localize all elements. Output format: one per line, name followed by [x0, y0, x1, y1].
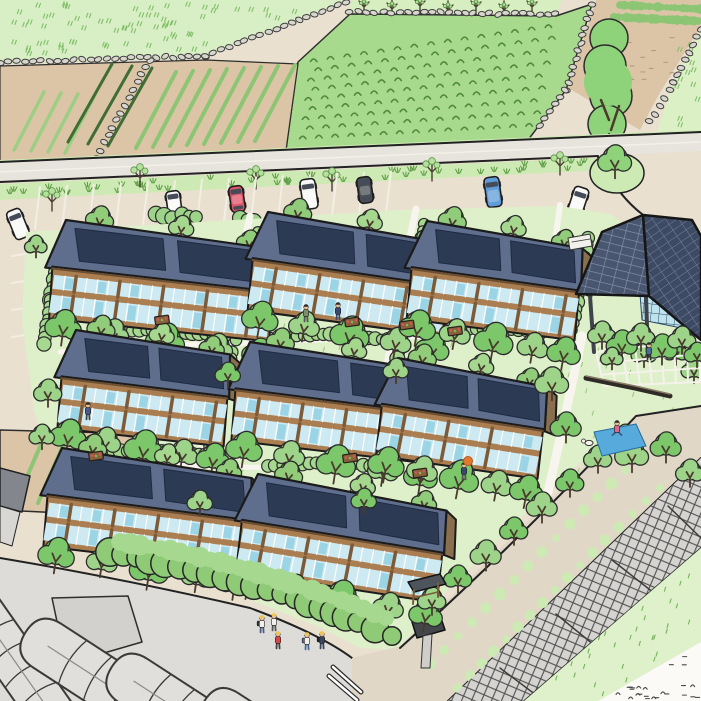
walker — [319, 636, 324, 643]
house-1 — [97, 281, 106, 293]
house-1 — [118, 281, 120, 297]
road-grass-strip — [656, 484, 664, 492]
house-5 — [257, 398, 260, 414]
house-4 — [73, 388, 83, 400]
stone-wall — [580, 25, 588, 31]
house-1 — [74, 276, 76, 292]
road-grass-strip — [467, 617, 477, 627]
yard-person — [335, 307, 340, 314]
road-grass-strip — [439, 645, 449, 655]
house-4 — [83, 386, 86, 402]
road-grass-strip — [537, 597, 548, 608]
house-5 — [247, 400, 257, 412]
stone-wall — [396, 9, 404, 15]
tall-tree — [584, 58, 632, 106]
house-4 — [106, 392, 116, 404]
stone-wall — [681, 57, 689, 63]
tree — [423, 161, 429, 167]
pavilion-person — [646, 347, 651, 354]
house-1 — [196, 293, 205, 305]
blue-van — [487, 189, 500, 202]
stone-wall — [54, 58, 62, 63]
stone-wall — [108, 125, 116, 131]
house-7 — [59, 506, 69, 518]
walker — [304, 637, 309, 644]
house-1 — [64, 278, 73, 290]
road-grass-strip — [601, 536, 609, 544]
stone-wall — [4, 59, 12, 64]
dog-head — [582, 439, 586, 443]
stone-wall — [677, 65, 685, 70]
stone-wall — [21, 59, 29, 64]
stone-wall — [345, 9, 353, 14]
tree — [390, 2, 393, 5]
tree — [43, 191, 49, 197]
tree — [131, 167, 137, 173]
road-grass-strip — [509, 575, 519, 585]
stone-wall — [412, 10, 420, 16]
stone-wall — [225, 44, 233, 49]
stone-wall — [29, 58, 37, 64]
tree — [429, 158, 436, 165]
garden-bed — [413, 468, 428, 478]
house-4 — [170, 397, 173, 413]
house-1 — [130, 285, 139, 297]
black-car — [359, 185, 370, 195]
yard-person — [85, 407, 90, 414]
stone-wall — [502, 10, 510, 16]
black-car — [355, 176, 375, 204]
stone-wall — [569, 64, 577, 69]
tree — [247, 169, 253, 175]
front-hedge — [378, 610, 394, 626]
house-7 — [92, 510, 102, 522]
house-7 — [156, 516, 159, 532]
road-grass-strip — [613, 522, 624, 533]
road-grass-strip — [480, 602, 491, 613]
walker — [275, 636, 280, 643]
stone-wall — [273, 26, 281, 32]
house-7 — [223, 527, 233, 539]
garden-bed — [89, 451, 104, 461]
tree — [557, 152, 564, 159]
stone-wall — [420, 9, 428, 14]
tree — [418, 0, 421, 2]
road-grass-strip — [536, 546, 547, 557]
road-grass-strip — [587, 547, 598, 558]
stone-wall — [556, 94, 564, 99]
stone-wall — [120, 56, 128, 61]
road-grass-strip — [562, 572, 573, 583]
house-7 — [112, 510, 115, 526]
road-grass-strip — [552, 534, 560, 542]
garden-bed — [448, 326, 463, 336]
gardener — [461, 467, 466, 474]
road-grass-strip — [642, 497, 651, 506]
picnic-person — [614, 425, 619, 432]
house-7 — [125, 514, 135, 526]
parking-bush — [190, 211, 203, 224]
dog — [585, 440, 593, 445]
scene-illustration — [0, 0, 701, 701]
stone-wall — [36, 57, 44, 63]
tree — [502, 3, 505, 6]
road-grass-strip — [565, 519, 575, 529]
line — [413, 590, 414, 604]
stone-wall — [519, 10, 527, 15]
tree — [323, 171, 329, 177]
eco-village-aerial-illustration — [0, 0, 701, 701]
road-grass-strip — [592, 492, 602, 502]
house-4 — [214, 402, 217, 418]
orange-umbrella — [464, 457, 473, 466]
garden-bed — [400, 320, 415, 330]
house-5 — [344, 410, 347, 426]
walker — [259, 620, 264, 627]
stone-wall — [193, 54, 201, 60]
garden-bed — [345, 317, 360, 327]
red-car — [227, 185, 247, 213]
stone-wall — [12, 58, 20, 64]
stone-wall — [693, 34, 701, 40]
stone-wall — [185, 53, 193, 59]
house-4 — [127, 392, 130, 408]
road-grass-strip — [576, 561, 584, 569]
stone-wall — [136, 54, 144, 60]
sign-post — [421, 634, 432, 668]
house-5 — [280, 404, 290, 416]
tree — [530, 0, 533, 3]
front-hedge — [383, 627, 402, 646]
house-7 — [200, 521, 203, 537]
red-car — [231, 194, 242, 204]
tree — [137, 164, 144, 171]
stone-wall — [134, 79, 142, 84]
tree — [253, 166, 260, 173]
road-grass-strip — [522, 560, 533, 571]
stone-wall — [666, 87, 674, 93]
stone-wall — [645, 118, 653, 124]
road-grass-strip — [502, 635, 510, 643]
stone-wall — [588, 2, 596, 8]
house-5 — [300, 404, 303, 420]
road-grass-strip — [605, 478, 617, 490]
yard-person — [303, 309, 308, 316]
stone-wall — [105, 132, 113, 138]
stone-wall — [302, 14, 310, 20]
tree — [446, 3, 449, 6]
stone-wall — [142, 64, 150, 70]
stone-wall — [61, 58, 69, 64]
house-5 — [313, 408, 323, 420]
stone-wall — [265, 29, 273, 34]
tree — [551, 155, 557, 161]
tree — [329, 168, 336, 175]
stone-wall — [127, 55, 135, 60]
road-grass-strip — [628, 510, 636, 518]
hedge — [37, 337, 51, 351]
walker — [271, 618, 276, 625]
tree — [474, 0, 477, 3]
house-1 — [228, 296, 237, 308]
road-grass-strip — [495, 589, 506, 600]
stone-wall — [551, 101, 559, 107]
stone-wall — [428, 9, 436, 14]
house-1 — [205, 291, 207, 307]
garden-bed — [155, 315, 170, 325]
tree — [49, 188, 56, 195]
tree — [362, 0, 365, 3]
road-grass-strip — [621, 466, 630, 475]
house-1 — [162, 286, 164, 302]
road-grass-strip — [454, 632, 462, 640]
road-grass-strip — [551, 586, 559, 594]
house-7 — [69, 504, 72, 520]
garden-bed — [343, 453, 358, 463]
house-4 — [139, 396, 149, 408]
road-grass-strip — [578, 505, 589, 516]
house-4 — [204, 404, 214, 416]
stone-wall — [288, 20, 296, 26]
house-7 — [190, 522, 200, 534]
